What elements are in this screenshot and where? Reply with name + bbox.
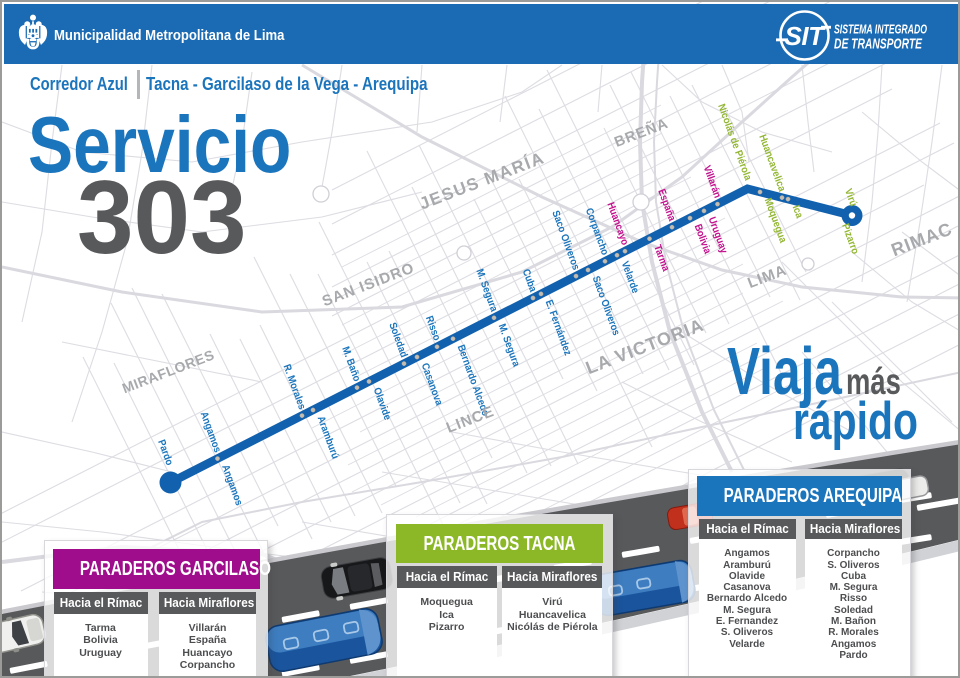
svg-text:DE TRANSPORTE: DE TRANSPORTE [834,37,923,53]
svg-text:MIRAFLORES: MIRAFLORES [120,346,217,396]
svg-text:Huancavelica: Huancavelica [756,133,787,194]
svg-text:LIMA: LIMA [745,262,789,292]
svg-text:Angamos: Angamos [219,463,245,507]
svg-text:Saco Oliveros: Saco Oliveros [590,275,622,338]
svg-text:RIMAC: RIMAC [888,219,955,261]
svg-text:SAN ISIDRO: SAN ISIDRO [320,259,417,310]
svg-text:Cuba: Cuba [520,268,539,294]
svg-text:Risso: Risso [423,315,443,343]
svg-text:Virú: Virú [842,187,859,208]
svg-text:M. Baño: M. Baño [339,345,362,383]
svg-text:Moquegua: Moquegua [762,197,789,245]
svg-text:SIT: SIT [785,21,827,51]
svg-text:Olavide: Olavide [371,386,394,422]
svg-text:SISTEMA INTEGRADO: SISTEMA INTEGRADO [834,23,927,37]
svg-text:Angamos: Angamos [197,410,223,454]
svg-text:Velarde: Velarde [619,260,641,296]
svg-text:R. Morales: R. Morales [280,363,307,412]
svg-text:E. Fernández: E. Fernández [543,299,574,358]
svg-text:Casanova: Casanova [419,362,445,408]
svg-text:Villarán: Villarán [701,164,723,200]
svg-text:Pizarro: Pizarro [839,222,861,256]
svg-text:Corpancho: Corpancho [583,207,611,257]
